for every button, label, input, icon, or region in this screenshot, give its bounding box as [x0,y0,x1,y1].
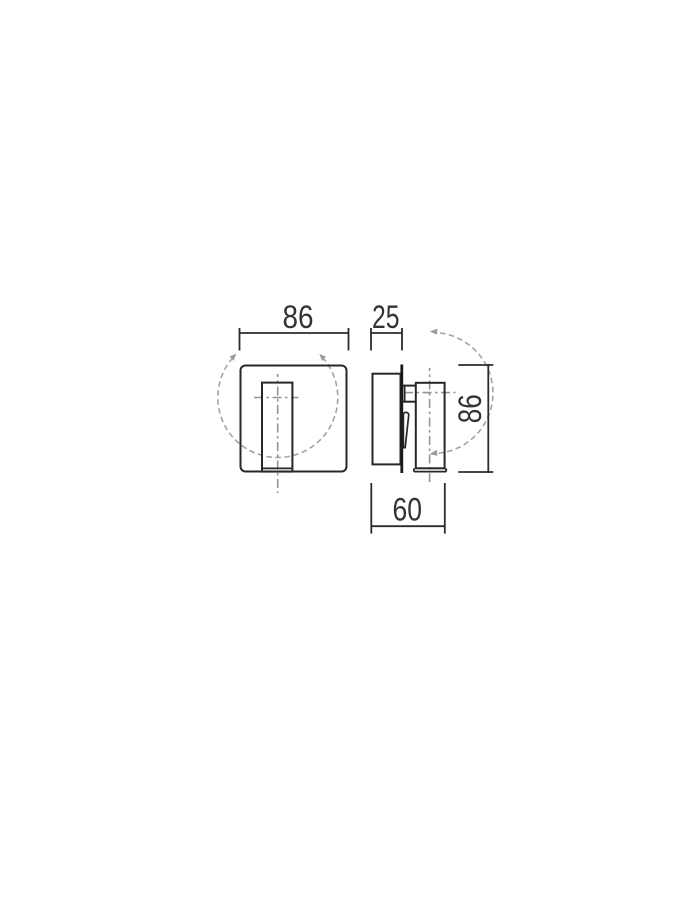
svg-text:86: 86 [452,394,488,423]
svg-text:25: 25 [372,299,400,335]
svg-text:86: 86 [283,299,314,335]
svg-text:60: 60 [392,492,422,528]
